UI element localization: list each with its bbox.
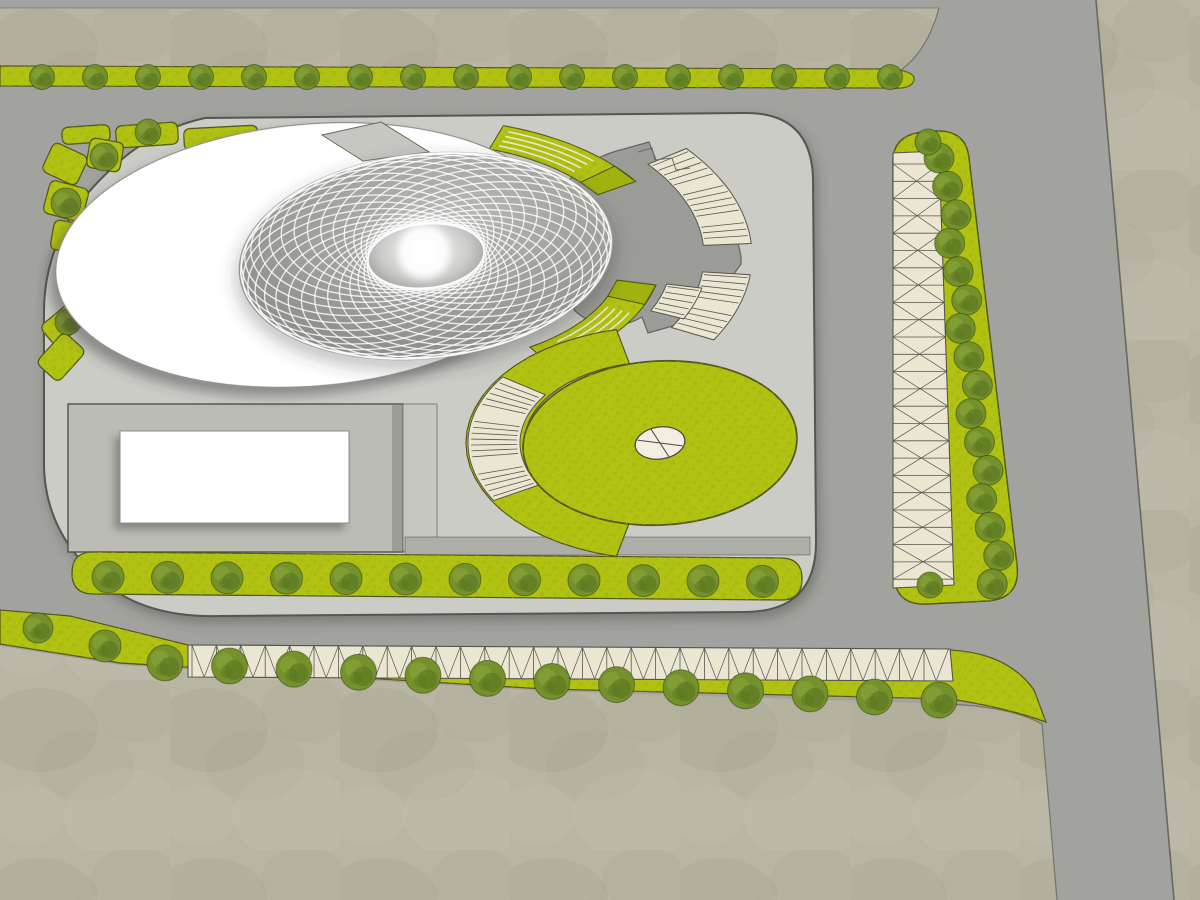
tree-icon	[915, 129, 941, 155]
tree-icon	[83, 65, 108, 90]
tree-icon	[772, 65, 797, 90]
tree-icon	[242, 65, 267, 90]
tree-icon	[628, 565, 660, 597]
site-plan-canvas	[0, 0, 1200, 900]
rectangular-building	[120, 431, 349, 523]
tree-icon	[405, 657, 441, 693]
tree-icon	[147, 645, 183, 681]
tree-icon	[965, 427, 995, 457]
tree-icon	[952, 285, 982, 315]
tree-icon	[534, 663, 570, 699]
tree-icon	[719, 65, 744, 90]
north-avenue-green-strip	[0, 65, 914, 90]
tree-icon	[984, 541, 1014, 571]
tree-icon	[212, 648, 248, 684]
tree-icon	[23, 613, 53, 643]
tree-icon	[967, 484, 997, 514]
courtyard	[68, 404, 437, 552]
tree-icon	[390, 563, 422, 595]
tree-icon	[30, 65, 55, 90]
tree-icon	[792, 676, 828, 712]
tree-icon	[152, 561, 184, 593]
tree-icon	[935, 228, 965, 258]
tree-icon	[51, 188, 81, 218]
tree-icon	[962, 370, 992, 400]
tree-icon	[954, 342, 984, 372]
tree-icon	[663, 670, 699, 706]
tree-icon	[975, 512, 1005, 542]
tree-icon	[973, 455, 1003, 485]
site-plan-svg	[0, 0, 1200, 900]
tree-icon	[135, 119, 161, 145]
tree-icon	[211, 562, 243, 594]
tree-icon	[348, 65, 373, 90]
tree-icon	[945, 313, 975, 343]
tree-icon	[977, 569, 1007, 599]
tree-icon	[189, 65, 214, 90]
tree-icon	[330, 563, 362, 595]
tree-icon	[933, 171, 963, 201]
tree-icon	[568, 564, 600, 596]
tree-icon	[89, 630, 121, 662]
tree-icon	[560, 65, 585, 90]
tree-icon	[507, 65, 532, 90]
tree-icon	[878, 65, 903, 90]
tree-icon	[90, 143, 118, 171]
tree-icon	[599, 667, 635, 703]
tree-icon	[449, 563, 481, 595]
tree-icon	[276, 651, 312, 687]
tree-icon	[825, 65, 850, 90]
tree-icon	[454, 65, 479, 90]
tree-icon	[271, 562, 303, 594]
tree-icon	[941, 200, 971, 230]
tree-icon	[956, 399, 986, 429]
tree-icon	[509, 564, 541, 596]
tree-icon	[747, 565, 779, 597]
ground-north	[0, 8, 939, 70]
tree-icon	[857, 679, 893, 715]
tree-icon	[613, 65, 638, 90]
tree-icon	[921, 682, 957, 718]
tree-icon	[687, 565, 719, 597]
tree-icon	[136, 65, 161, 90]
tree-icon	[295, 65, 320, 90]
tree-icon	[917, 572, 943, 598]
tree-icon	[728, 673, 764, 709]
tree-icon	[341, 654, 377, 690]
parcel-south-green-strip	[72, 552, 802, 600]
tree-icon	[92, 561, 124, 593]
tree-icon	[666, 65, 691, 90]
tree-icon	[943, 257, 973, 287]
tree-icon	[470, 660, 506, 696]
tree-icon	[401, 65, 426, 90]
